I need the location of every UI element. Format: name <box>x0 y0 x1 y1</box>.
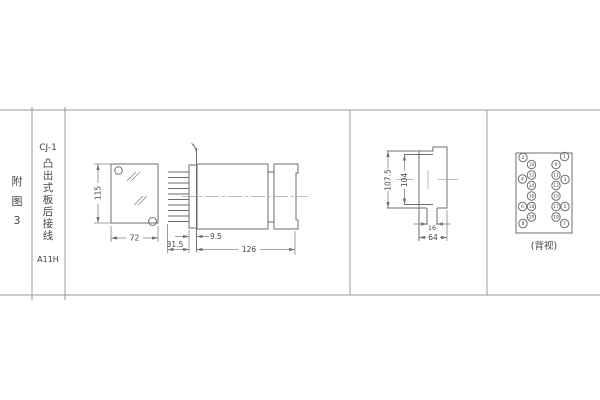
side-view: 9.5 31.5 126 <box>167 144 308 256</box>
desc-char-4: 板 <box>43 193 54 206</box>
pin: 17 <box>552 202 560 210</box>
dim-profile-slot: 16 <box>428 224 436 232</box>
pin: 1 <box>560 152 568 160</box>
desc-char-1: 凸 <box>43 158 54 170</box>
dim-front-height: 115 <box>94 186 103 201</box>
pin-label: 17 <box>553 204 559 210</box>
pin: 7 <box>560 219 568 227</box>
pin-label: 3 <box>564 177 567 183</box>
pin-label: 4 <box>521 177 524 183</box>
front-view: 115 72 <box>94 164 159 243</box>
hatch-mark-2 <box>134 196 147 205</box>
figure-char-2: 图 <box>12 195 23 208</box>
table-grid <box>0 107 600 300</box>
dim-104: 104 <box>400 155 409 205</box>
body-neck <box>268 172 274 222</box>
dim-side-length: 126 <box>242 245 257 254</box>
pin: 9 <box>552 160 560 168</box>
pin: 14 <box>527 181 535 189</box>
rear-view-caption: (背视) <box>531 240 557 252</box>
pin-label: 5 <box>564 204 567 210</box>
pin-label: 14 <box>529 183 535 189</box>
profile-outline <box>387 147 447 225</box>
mounting-hole-bottom <box>149 218 157 226</box>
pin: 8 <box>519 219 527 227</box>
pin: 18 <box>527 202 535 210</box>
pin-label: 1 <box>563 154 566 160</box>
pin: 11 <box>552 171 560 179</box>
pin: 3 <box>561 175 569 183</box>
pin: 19 <box>552 213 560 221</box>
desc-char-3: 式 <box>43 181 54 194</box>
rear-view: 2 4 6 8 10 12 14 16 18 20 9 11 13 15 17 … <box>516 152 572 252</box>
dim-107-5: 107.5 <box>384 151 393 208</box>
profile-view: 107.5 104 16 64 <box>384 147 459 242</box>
pin-label: 8 <box>522 221 525 227</box>
pin: 10 <box>527 160 535 168</box>
desc-char-5: 后 <box>43 206 54 218</box>
pin-label: 18 <box>529 204 535 210</box>
desc-char-7: 线 <box>43 229 54 242</box>
dim-31-5: 31.5 <box>167 224 189 253</box>
pin-label: 15 <box>553 194 559 200</box>
pin: 20 <box>527 213 535 221</box>
dim-115: 115 <box>94 164 112 223</box>
pin-label: 10 <box>529 162 535 168</box>
dim-72: 72 <box>111 226 158 243</box>
desc-char-6: 接 <box>43 217 54 230</box>
pin-label: 16 <box>529 194 535 200</box>
pin-label: 19 <box>553 215 559 221</box>
pin: 13 <box>552 181 560 189</box>
dim-side-offset: 9.5 <box>210 232 222 241</box>
figure-char-1: 附 <box>12 174 23 188</box>
dim-profile-inner-height: 104 <box>400 173 409 188</box>
socket-outline <box>516 153 572 233</box>
pin: 6 <box>518 202 526 210</box>
glass-hatch-marks <box>127 172 147 205</box>
desc-char-2: 出 <box>43 169 54 182</box>
code-label: A11H <box>37 255 59 264</box>
pin-label: 2 <box>522 155 525 161</box>
drawing-sheet: 附 图 3 CJ-1 凸 出 式 板 后 接 线 A11H 115 <box>0 0 600 400</box>
dim-profile-outer-height: 107.5 <box>384 169 393 191</box>
pin: 16 <box>527 192 535 200</box>
dim-front-width: 72 <box>130 234 140 243</box>
pin-label: 20 <box>529 215 535 221</box>
pin: 4 <box>518 175 526 183</box>
pin: 12 <box>527 171 535 179</box>
model-label: CJ-1 <box>39 143 57 153</box>
pin: 2 <box>519 153 527 161</box>
title-block: 附 图 3 CJ-1 凸 出 式 板 后 接 线 A11H <box>12 143 59 264</box>
pin-label: 6 <box>521 204 524 210</box>
pin-label: 9 <box>555 162 558 168</box>
pin-label: 11 <box>553 173 559 179</box>
technical-drawing: 附 图 3 CJ-1 凸 出 式 板 后 接 线 A11H 115 <box>0 0 600 400</box>
pin-label: 7 <box>563 221 566 227</box>
front-panel-outline <box>111 164 158 223</box>
dim-side-terminals: 31.5 <box>167 240 184 249</box>
mounting-hole-top <box>115 167 123 175</box>
panel-clip-hook <box>192 144 197 153</box>
pin-label: 13 <box>553 183 559 189</box>
dim-profile-width: 64 <box>428 233 438 242</box>
pin: 5 <box>561 202 569 210</box>
pin: 15 <box>552 192 560 200</box>
figure-char-3: 3 <box>14 214 21 227</box>
pin-label: 12 <box>529 173 535 179</box>
hatch-mark-1 <box>127 172 140 181</box>
